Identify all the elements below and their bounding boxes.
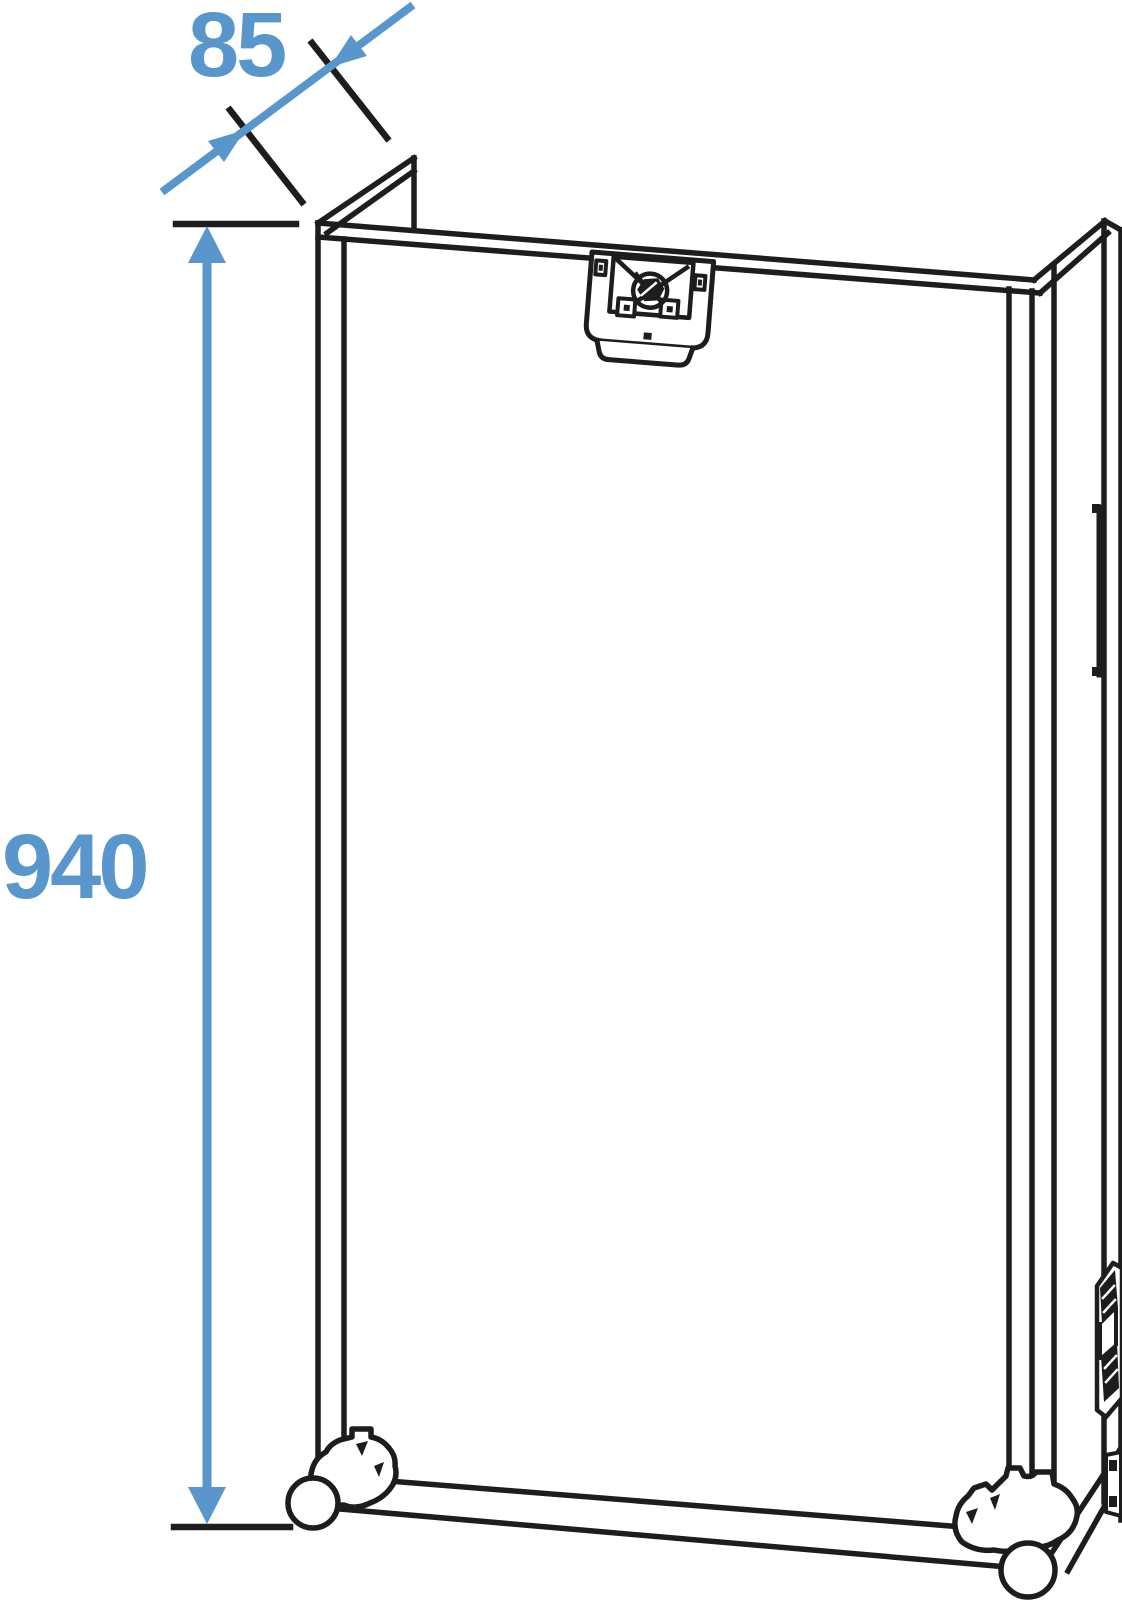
arrow-down-icon (188, 1487, 226, 1524)
left-caster-wheel (288, 1478, 338, 1528)
butterfly-latch (584, 252, 714, 367)
right-front-edge (1009, 266, 1054, 1542)
lower-hinge (1097, 1263, 1122, 1417)
height-dimension-label: 940 (2, 816, 147, 918)
upper-hinge (1092, 504, 1100, 676)
depth-dimension-label: 85 (188, 0, 285, 96)
right-caster-wheel (1001, 1543, 1055, 1597)
dimension-height (188, 226, 226, 1524)
rack-case-technical-drawing: 940 85 (0, 0, 1122, 1600)
linework (174, 43, 1122, 1597)
corner-bracket (1106, 1452, 1121, 1516)
dimension-annotations (162, 5, 413, 1524)
right-wall-top-rim (1034, 221, 1121, 293)
right-caster (955, 1468, 1077, 1597)
drawing-canvas: 940 85 (0, 0, 1122, 1600)
depth-ext-tick-lower (230, 110, 302, 202)
left-front-edge (318, 223, 344, 1466)
arrow-up-icon (188, 226, 226, 263)
